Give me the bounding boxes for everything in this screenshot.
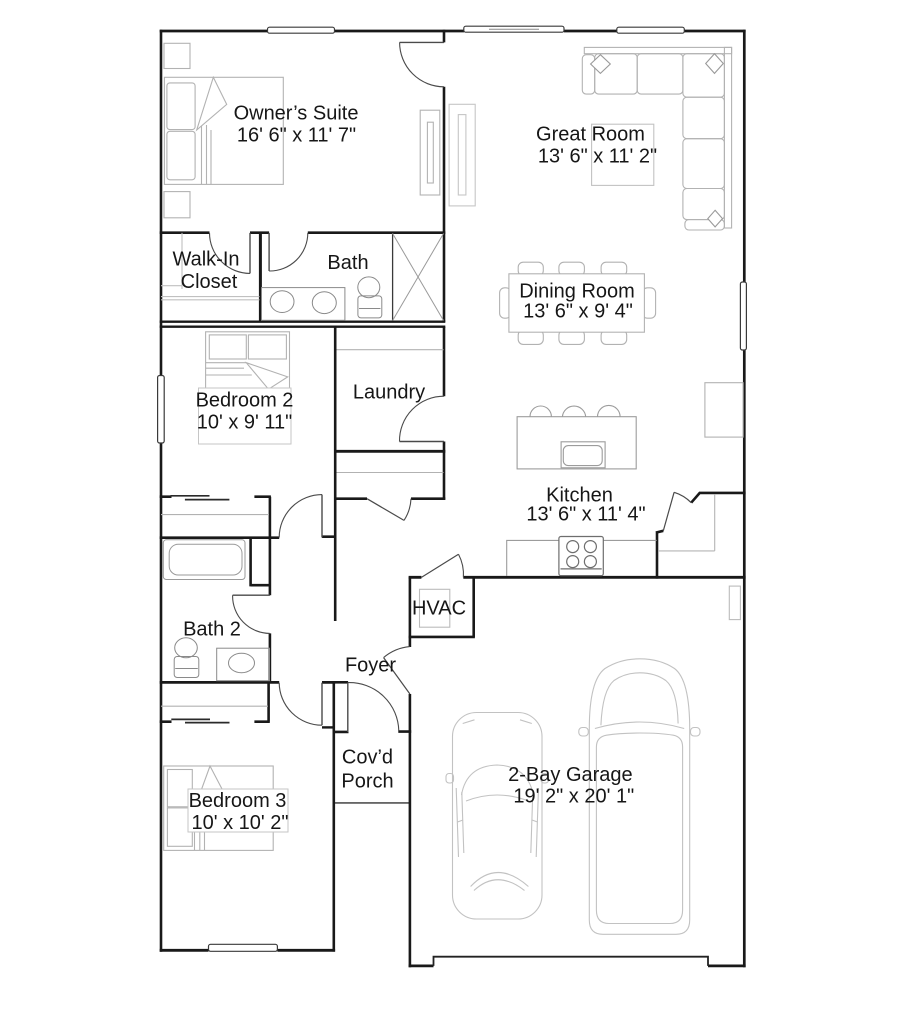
svg-text:16' 6" x 11' 7": 16' 6" x 11' 7" xyxy=(237,125,356,147)
svg-text:Bath 2: Bath 2 xyxy=(183,619,241,641)
svg-text:13' 6" x 9' 4": 13' 6" x 9' 4" xyxy=(523,301,633,323)
svg-text:10' x 9' 11": 10' x 9' 11" xyxy=(197,412,293,434)
svg-text:13' 6" x 11' 2": 13' 6" x 11' 2" xyxy=(538,146,657,168)
svg-text:Owner’s Suite: Owner’s Suite xyxy=(234,103,359,125)
svg-text:Bedroom 2: Bedroom 2 xyxy=(196,390,294,412)
svg-text:Bath: Bath xyxy=(327,252,368,274)
svg-text:Porch: Porch xyxy=(341,771,393,793)
svg-text:2-Bay Garage: 2-Bay Garage xyxy=(508,764,633,786)
svg-text:Dining Room: Dining Room xyxy=(519,281,635,303)
svg-text:Bedroom 3: Bedroom 3 xyxy=(189,790,287,812)
svg-text:10' x 10' 2": 10' x 10' 2" xyxy=(191,812,288,834)
svg-text:Walk-In: Walk-In xyxy=(172,249,239,271)
svg-text:Laundry: Laundry xyxy=(353,382,425,404)
svg-text:Foyer: Foyer xyxy=(345,655,396,677)
svg-text:Great Room: Great Room xyxy=(536,124,645,146)
svg-text:13' 6" x 11' 4": 13' 6" x 11' 4" xyxy=(526,504,645,526)
svg-text:19' 2" x 20' 1": 19' 2" x 20' 1" xyxy=(513,786,634,808)
svg-text:Cov’d: Cov’d xyxy=(342,747,393,769)
svg-text:Closet: Closet xyxy=(181,271,238,293)
svg-text:HVAC: HVAC xyxy=(412,598,466,620)
